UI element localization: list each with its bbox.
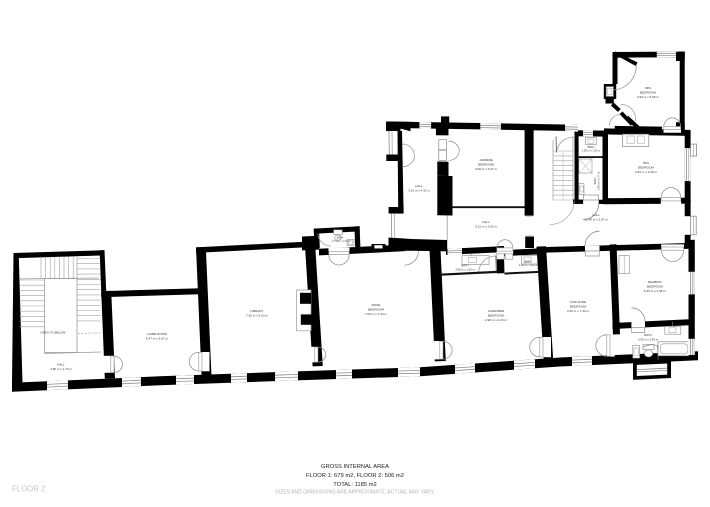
svg-text:BATH: BATH [588,145,595,149]
svg-text:SIZES AND DIMENSIONS ARE APPRO: SIZES AND DIMENSIONS ARE APPROXIMATE, AC… [275,490,434,496]
svg-text:BEDROOM: BEDROOM [638,165,654,169]
svg-text:4.83 m x 4.28 m: 4.83 m x 4.28 m [635,170,658,174]
svg-text:HALL: HALL [482,220,490,224]
svg-text:GROSS INTERNAL AREA: GROSS INTERNAL AREA [321,464,389,470]
svg-text:3.01 m x 4.32 m: 3.01 m x 4.32 m [408,188,430,192]
svg-text:1.45 m x 2.77 m: 1.45 m x 2.77 m [597,172,601,191]
svg-text:HALL: HALL [592,213,600,217]
svg-text:BATH: BATH [593,178,597,185]
svg-text:BEDROOM: BEDROOM [488,314,504,318]
svg-text:BATH: BATH [525,259,532,263]
svg-text:BEDROOM: BEDROOM [647,285,663,289]
svg-text:1.79 m x 1.73 m: 1.79 m x 1.73 m [332,240,350,243]
svg-text:HALL: HALL [415,184,423,188]
svg-text:BEDROOM: BEDROOM [368,308,384,312]
svg-text:IRIS: IRIS [645,86,651,90]
svg-text:TOTAL: 1185 m2: TOTAL: 1185 m2 [333,482,377,488]
svg-text:7.35 m x 4.23 m: 7.35 m x 4.23 m [246,314,269,318]
svg-text:1.93 m x 1.33 m: 1.93 m x 1.33 m [582,149,601,153]
svg-text:ROSE: ROSE [372,303,381,307]
svg-text:JASMINE: JASMINE [479,158,492,162]
svg-text:LAVENDER: LAVENDER [488,309,505,313]
svg-text:IRIS: IRIS [643,161,649,165]
svg-text:FLOOR 2: FLOOR 2 [12,485,45,494]
svg-text:OPEN TO BELOW: OPEN TO BELOW [40,331,65,335]
svg-text:BEDROOM: BEDROOM [478,162,494,166]
svg-text:3.89 m x 1.36 m: 3.89 m x 1.36 m [455,267,475,271]
svg-text:3.08 m x 5.27 m: 3.08 m x 5.27 m [475,167,498,171]
svg-text:LIBRARY: LIBRARY [250,309,263,313]
svg-text:6.47 m x 5.67 m: 6.47 m x 5.67 m [146,337,169,341]
svg-text:CAPUCINE: CAPUCINE [570,300,586,304]
svg-text:4.98 m x 2.23 m: 4.98 m x 2.23 m [485,318,508,322]
svg-text:5.25 m x 4.65 m: 5.25 m x 4.65 m [644,289,667,293]
svg-text:3.30 m x 2.96 m: 3.30 m x 2.96 m [638,337,659,341]
svg-text:BATH: BATH [462,263,469,267]
svg-text:BEDROOM: BEDROOM [570,305,586,309]
svg-text:GAME ROOM: GAME ROOM [147,332,167,336]
svg-text:7.09 m x 4.13 m: 7.09 m x 4.13 m [365,312,388,316]
svg-text:BAMBOO: BAMBOO [648,280,662,284]
svg-text:1.30 m x 1.54 m: 1.30 m x 1.54 m [519,263,538,267]
svg-text:5.21 m x 2.50 m: 5.21 m x 2.50 m [475,224,497,228]
svg-text:3.80 m x 1.73 m: 3.80 m x 1.73 m [50,367,72,371]
svg-text:4.36 m x 7.34 m: 4.36 m x 7.34 m [567,309,590,313]
svg-text:4.99 m x 5.06 m: 4.99 m x 5.06 m [637,95,660,99]
svg-text:BEDROOM: BEDROOM [640,90,656,94]
svg-text:FLOOR 1: 679 m2, FLOOR 2: 506: FLOOR 1: 679 m2, FLOOR 2: 506 m2 [306,473,404,479]
svg-text:10.44 m x 2.07 m: 10.44 m x 2.07 m [584,217,608,221]
